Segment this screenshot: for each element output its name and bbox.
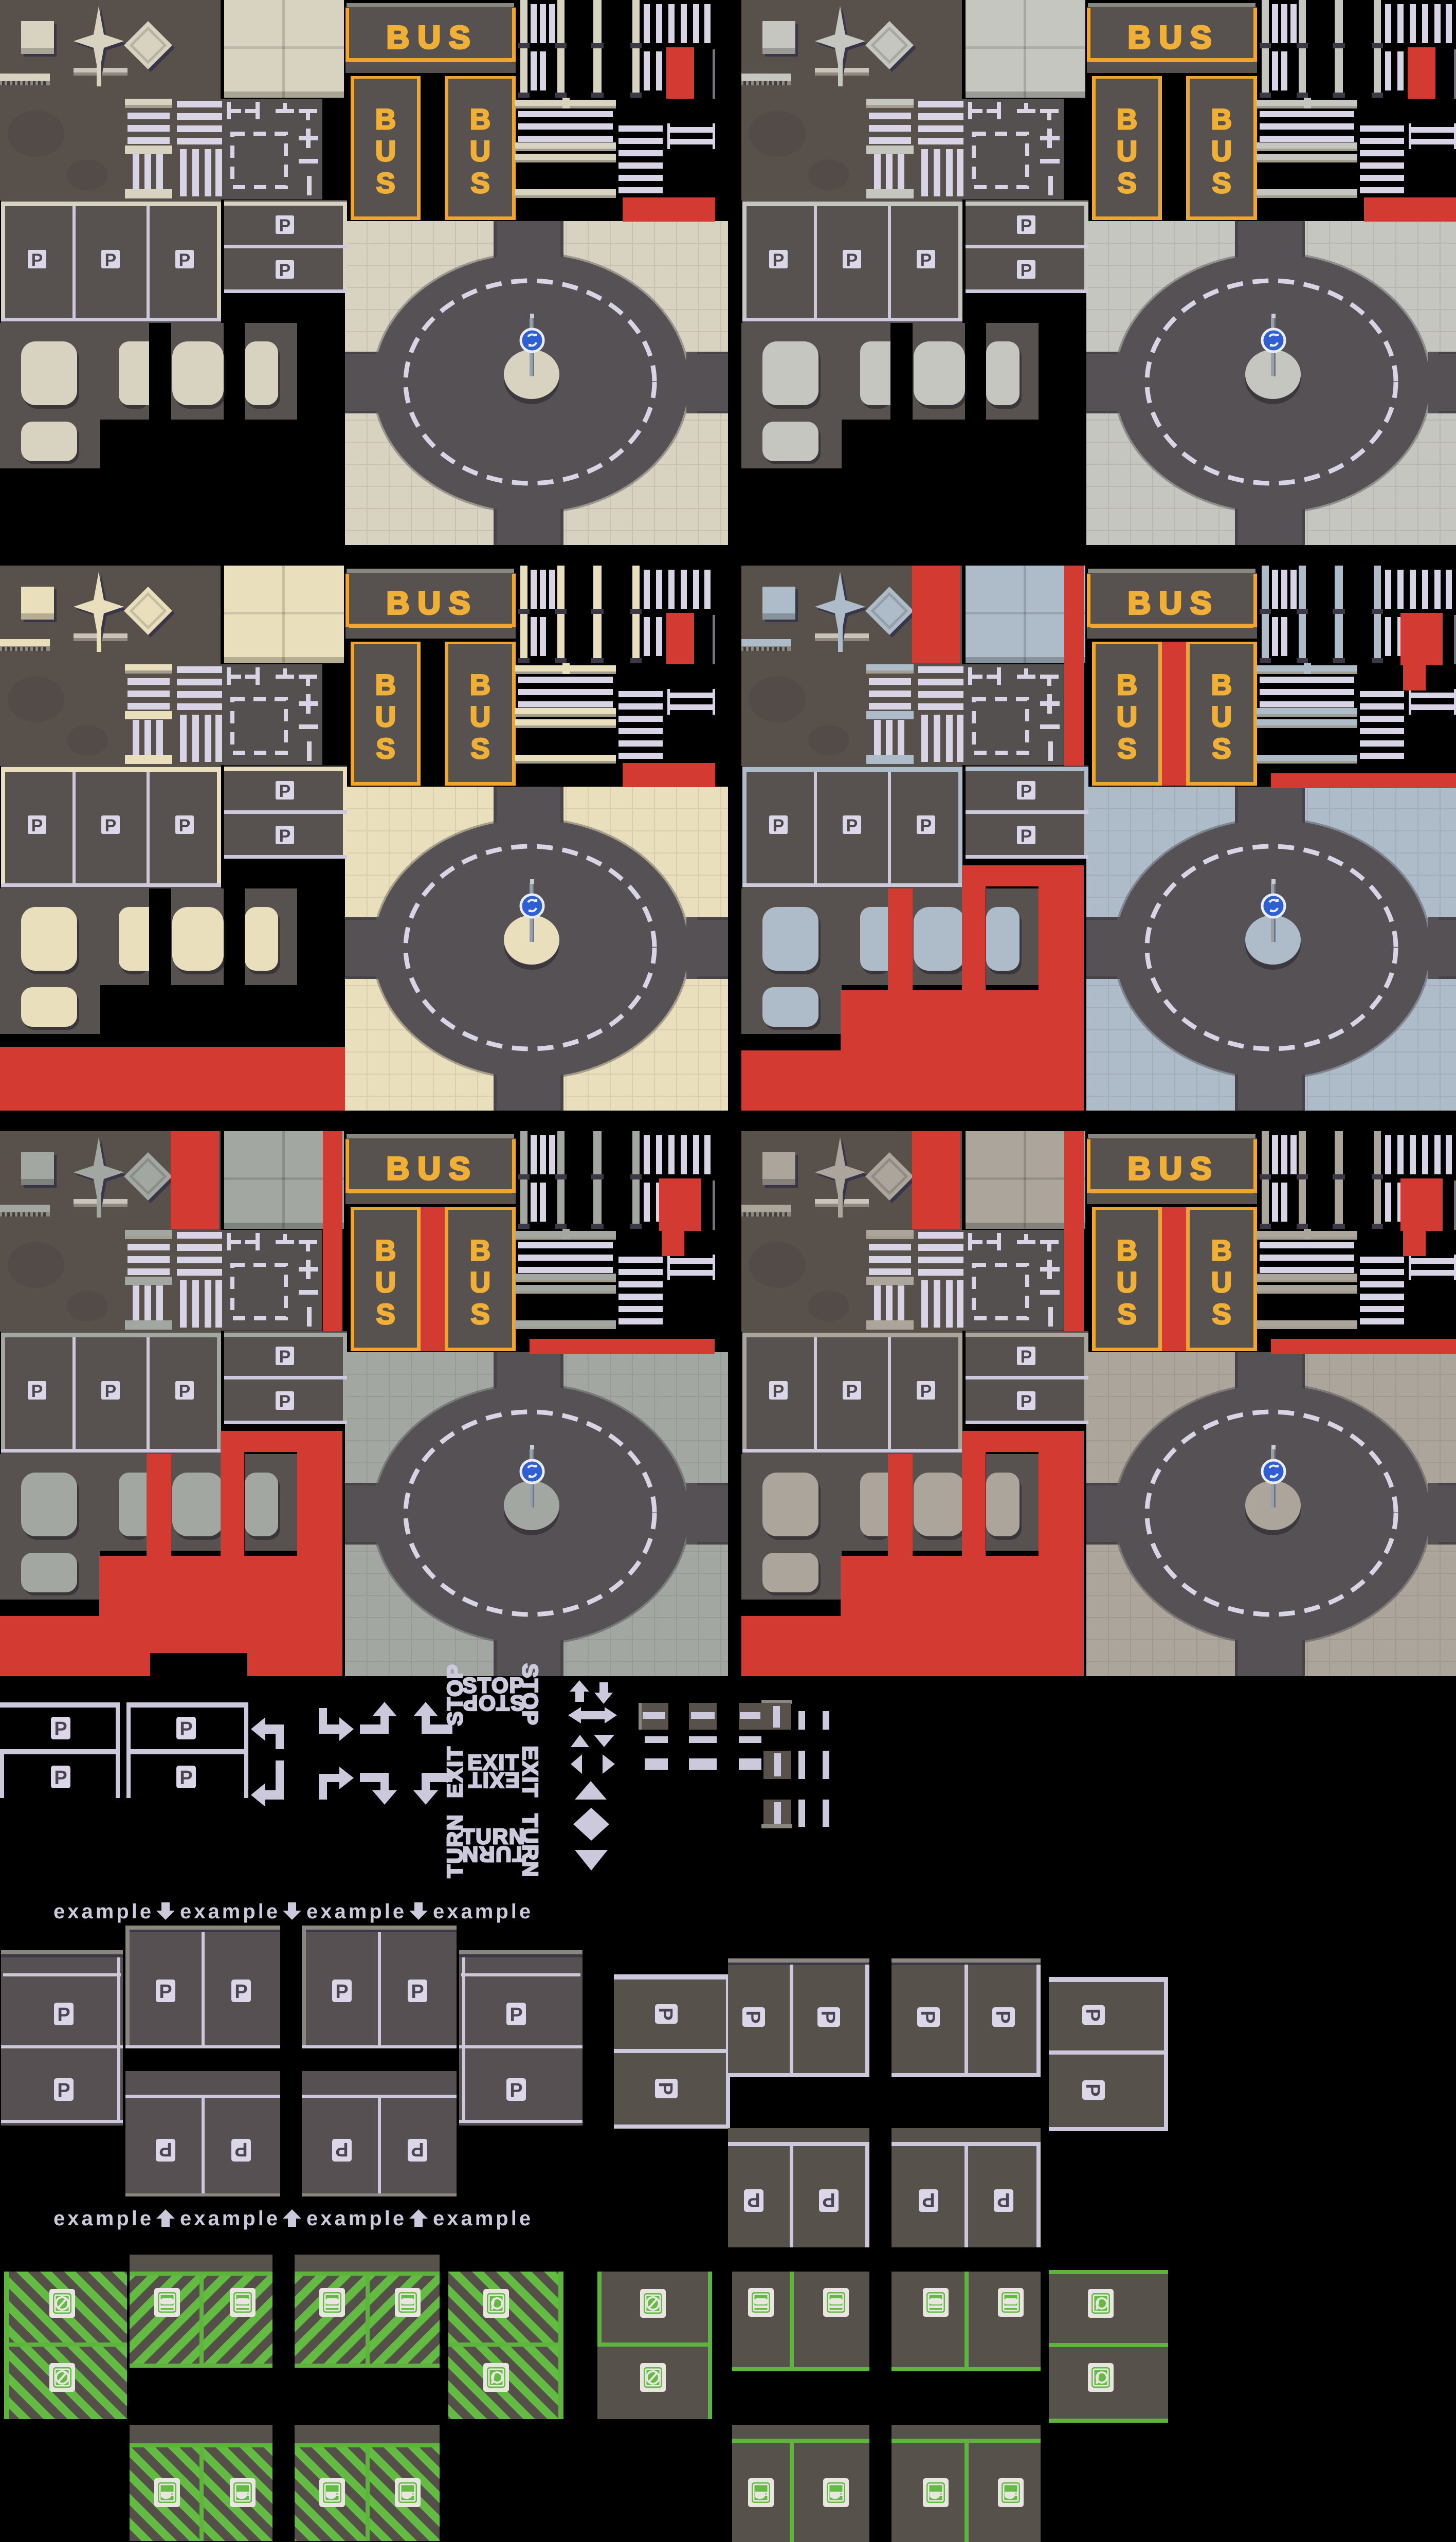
svg-text:example: example [306,2207,407,2230]
svg-text:STOP: STOP [462,1691,525,1715]
svg-text:TURN: TURN [518,1814,542,1878]
svg-text:STOP: STOP [518,1663,542,1726]
svg-text:example: example [53,1900,154,1923]
svg-text:example: example [306,1900,407,1923]
svg-text:example: example [433,2207,533,2230]
svg-text:example: example [433,1900,533,1923]
svg-text:TURN: TURN [462,1842,526,1866]
svg-text:EXIT: EXIT [518,1746,542,1797]
svg-text:STOP: STOP [443,1663,467,1726]
svg-text:example: example [180,2207,280,2230]
svg-text:EXIT: EXIT [443,1746,467,1797]
svg-text:example: example [53,2207,154,2230]
svg-text:TURN: TURN [443,1814,467,1878]
svg-text:example: example [180,1900,280,1923]
svg-text:EXIT: EXIT [467,1768,519,1792]
